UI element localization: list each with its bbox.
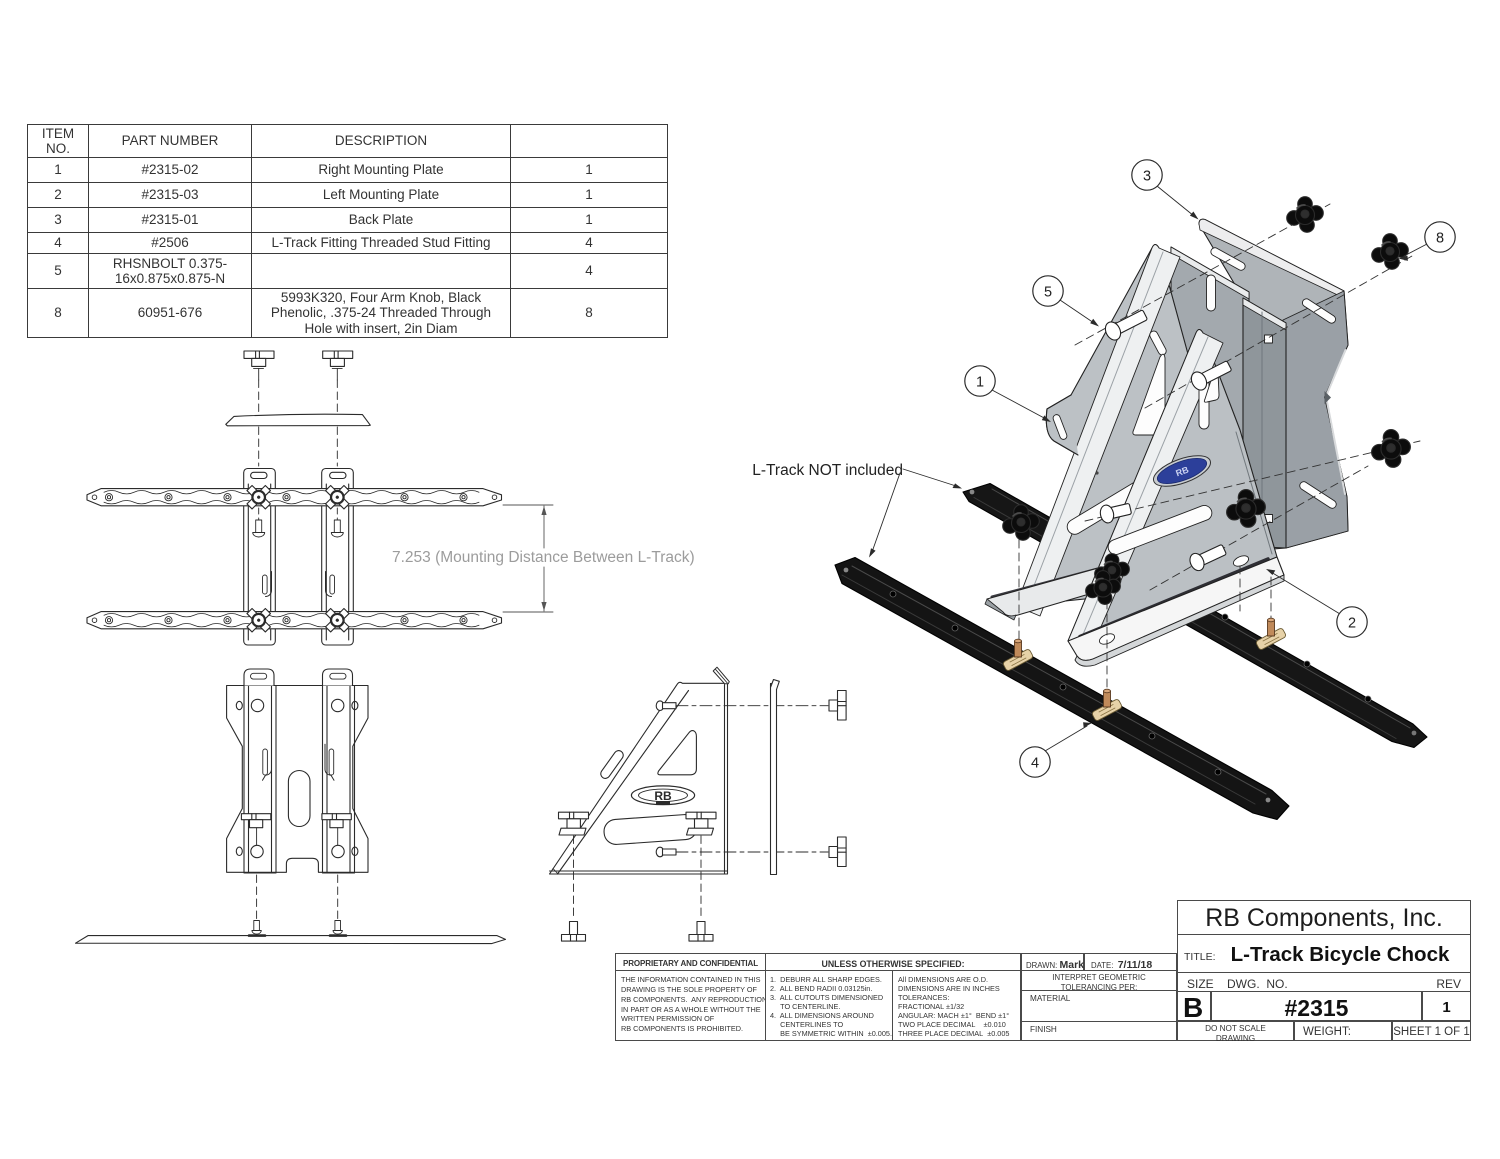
svg-text:7.253 (Mounting Distance Betwe: 7.253 (Mounting Distance Between L-Track…: [392, 549, 695, 566]
svg-text:1: 1: [976, 375, 984, 391]
svg-text:3: 3: [1143, 169, 1151, 185]
svg-text:4: 4: [1031, 756, 1039, 772]
svg-text:L-Track NOT included: L-Track NOT included: [752, 462, 903, 479]
svg-text:2: 2: [1348, 616, 1356, 632]
svg-text:5: 5: [1044, 285, 1052, 301]
svg-text:8: 8: [1436, 231, 1444, 247]
svg-text:RB: RB: [654, 789, 672, 803]
